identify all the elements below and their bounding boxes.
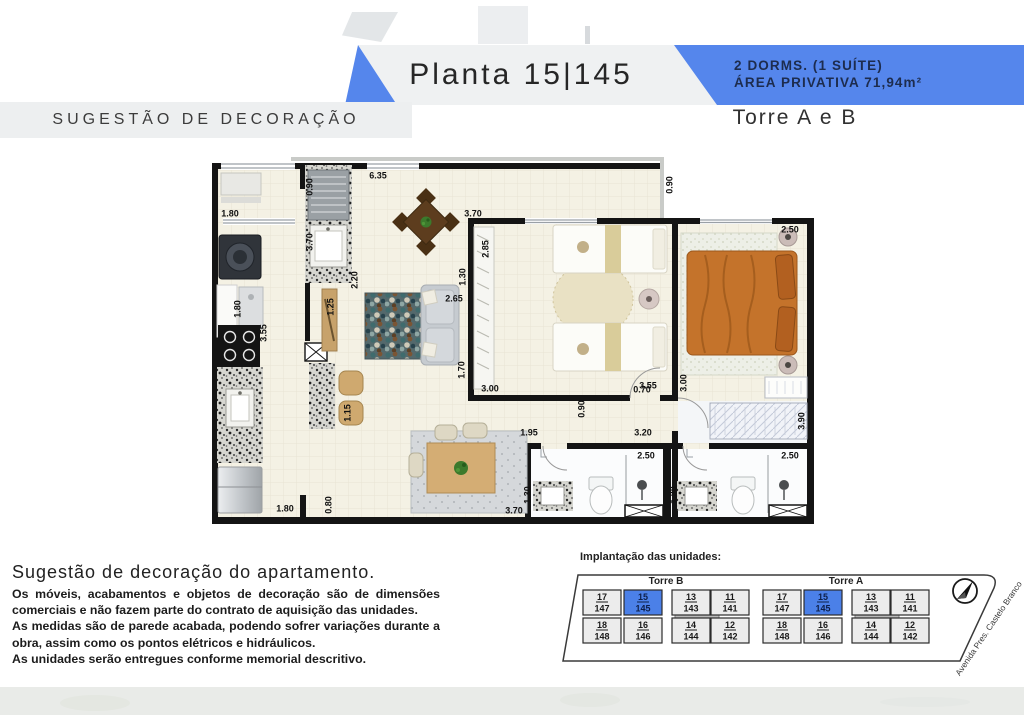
- spec-band: 2 DORMS. (1 SUÍTE) ÁREA PRIVATIVA 71,94m…: [674, 45, 1024, 105]
- dimension-label: 3.70: [304, 233, 314, 251]
- compass: [953, 579, 977, 603]
- dimension-label: 3.70: [464, 208, 482, 218]
- single-bed: [553, 225, 667, 273]
- spec-line-dorms: 2 DORMS. (1 SUÍTE): [734, 58, 1024, 75]
- unit-number-top: 11: [905, 592, 915, 602]
- double-bed: [687, 251, 797, 355]
- dimension-label: 1.30: [522, 486, 532, 504]
- dimension-label: 1.30: [668, 486, 678, 504]
- disclaimer-title: Sugestão de decoração do apartamento.: [12, 562, 440, 583]
- unit-number-bottom: 147: [594, 604, 609, 614]
- unit-number-top: 17: [777, 592, 787, 602]
- floor-plan: 0.906.351.803.702.201.803.551.252.651.70…: [205, 157, 825, 527]
- unit-number-top: 14: [866, 620, 876, 630]
- unit-number-top: 13: [686, 592, 696, 602]
- dimension-label: 3.00: [481, 383, 499, 393]
- dimension-label: 3.20: [634, 427, 652, 437]
- stool: [339, 371, 363, 395]
- dimension-label: 3.00: [678, 374, 688, 392]
- dimension-label: 1.15: [342, 404, 352, 422]
- dimension-label: 2.20: [349, 271, 359, 289]
- unit-number-bottom: 148: [594, 632, 609, 642]
- fridge: [218, 467, 262, 513]
- unit-number-top: 13: [866, 592, 876, 602]
- unit-number-bottom: 144: [683, 632, 698, 642]
- dimension-label: 0.70: [633, 384, 651, 394]
- disclaimer-line: As medidas são de parede acabada, podend…: [12, 618, 440, 650]
- unit-number-top: 15: [818, 592, 828, 602]
- unit-number-top: 12: [905, 620, 915, 630]
- page-title: Planta 15|145: [365, 45, 677, 105]
- dimension-label: 2.85: [480, 240, 490, 258]
- unit-number-top: 16: [818, 620, 828, 630]
- photo-remnant: [585, 26, 590, 44]
- cooktop: [218, 325, 260, 367]
- dimension-label: 1.80: [221, 208, 239, 218]
- unit-number-top: 11: [725, 592, 735, 602]
- tower-name: Torre A: [829, 576, 863, 587]
- footer-strip: [0, 687, 1024, 715]
- unit-number-top: 18: [597, 620, 607, 630]
- dimension-label: 2.50: [637, 450, 655, 460]
- tower-name: Torre B: [649, 576, 684, 587]
- decor-banner: SUGESTÃO DE DECORAÇÃO: [0, 102, 412, 138]
- window-box: [769, 505, 807, 517]
- dimension-label: 1.70: [456, 361, 466, 379]
- unit-number-top: 14: [686, 620, 696, 630]
- unit-number-top: 17: [597, 592, 607, 602]
- dimension-label: 0.90: [304, 178, 314, 196]
- unit-number-top: 18: [777, 620, 787, 630]
- single-bed: [553, 323, 667, 371]
- unit-number-top: 16: [638, 620, 648, 630]
- dimension-label: 1.80: [276, 503, 294, 513]
- dimension-label: 1.25: [325, 298, 335, 316]
- dimension-label: 2.50: [781, 224, 799, 234]
- unit-number-bottom: 141: [722, 604, 737, 614]
- disclaimer-line: As unidades serão entregues conforme mem…: [12, 651, 440, 667]
- dimension-label: 0.80: [323, 496, 333, 514]
- dimension-label: 0.90: [664, 176, 674, 194]
- site-plan: Avenida Pres. Castelo Branco Torre B1714…: [548, 568, 1024, 673]
- disclaimer: Sugestão de decoração do apartamento. Os…: [12, 562, 440, 667]
- unit-number-bottom: 143: [683, 604, 698, 614]
- toilet: [732, 486, 754, 514]
- chair: [435, 425, 457, 440]
- dimension-label: 1.95: [520, 427, 538, 437]
- unit-number-top: 12: [725, 620, 735, 630]
- site-plan-label: Implantação das unidades:: [580, 551, 721, 563]
- unit-number-bottom: 143: [863, 604, 878, 614]
- unit-number-bottom: 144: [863, 632, 878, 642]
- disclaimer-line: Os móveis, acabamentos e objetos de deco…: [12, 586, 440, 618]
- unit-number-bottom: 142: [902, 632, 917, 642]
- unit-number-bottom: 142: [722, 632, 737, 642]
- mosaic-rug: [365, 293, 427, 359]
- window-box: [625, 505, 663, 517]
- dimension-label: 3.55: [258, 324, 268, 342]
- dimension-label: 3.90: [796, 412, 806, 430]
- shower-head: [779, 480, 789, 490]
- unit-number-bottom: 141: [902, 604, 917, 614]
- home-dining: [409, 423, 527, 513]
- dimension-label: 6.35: [369, 170, 387, 180]
- shower-head: [637, 480, 647, 490]
- dimension-label: 2.50: [781, 450, 799, 460]
- unit-number-bottom: 146: [635, 632, 650, 642]
- tower-label: Torre A e B: [690, 106, 900, 130]
- dimension-label: 2.65: [445, 293, 463, 303]
- unit-number-top: 15: [638, 592, 648, 602]
- unit-number-bottom: 146: [815, 632, 830, 642]
- unit-number-bottom: 145: [635, 604, 650, 614]
- dimension-label: 3.70: [505, 505, 523, 515]
- spec-line-area: ÁREA PRIVATIVA 71,94m²: [734, 75, 1024, 92]
- kitchen: [217, 285, 263, 513]
- dimension-label: 1.30: [457, 268, 467, 286]
- wardrobe: [710, 403, 807, 439]
- unit-number-bottom: 148: [774, 632, 789, 642]
- chair: [409, 453, 423, 477]
- chair: [463, 423, 487, 438]
- dimension-label: 1.80: [232, 300, 242, 318]
- unit-number-bottom: 145: [815, 604, 830, 614]
- toilet: [590, 486, 612, 514]
- divider-counter: [309, 363, 335, 429]
- unit-number-bottom: 147: [774, 604, 789, 614]
- photo-remnant: [478, 6, 528, 44]
- dimension-label: 0.90: [576, 400, 586, 418]
- photo-remnant: [342, 12, 398, 42]
